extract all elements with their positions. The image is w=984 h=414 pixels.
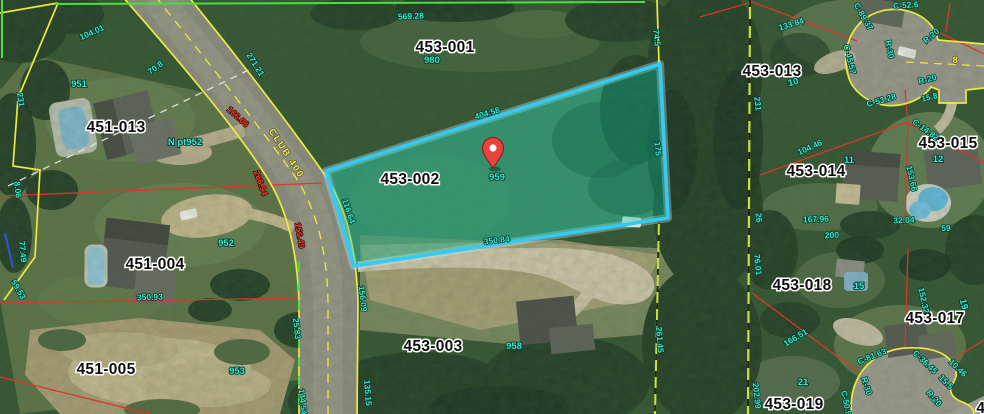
dim-label-8-06: 8.06 [12, 181, 24, 199]
dim-label-231: 231 [15, 92, 27, 108]
dim-label-569-28: 569.28 [398, 10, 425, 21]
dim-label-350-93: 350.93 [137, 292, 164, 303]
parcel-label-453-001: 453-001 [416, 39, 475, 56]
parcel-label-453-019: 453-019 [765, 396, 824, 413]
parcel-label-453-014: 453-014 [787, 163, 846, 180]
dim-label-26: 26 [754, 212, 765, 223]
map-canvas[interactable]: 453-001453-002451-013451-004451-005453-0… [0, 0, 984, 414]
addr-label-n-pt952: N pt952 [168, 137, 202, 148]
addr-label-959: 959 [489, 172, 505, 183]
dim-label-261-45: 261.45 [654, 326, 666, 353]
parcel-label-453-0: 453-0 [976, 400, 984, 414]
addr-label-951: 951 [71, 79, 88, 90]
dim-label-32-04: 32.04 [893, 215, 915, 226]
dim-label-59: 59 [941, 223, 951, 233]
parcel-label-453-017: 453-017 [906, 310, 965, 327]
parcel-label-453-018: 453-018 [773, 277, 832, 294]
dim-label-175: 175 [652, 141, 663, 156]
pin-dot [489, 144, 496, 151]
addr-label-980: 980 [424, 55, 440, 66]
parcel-label-451-013: 451-013 [87, 119, 146, 136]
parcel-label-451-004: 451-004 [126, 256, 185, 273]
addr-label-958: 958 [506, 341, 522, 352]
dim-label-c-52-6: C-52.6 [893, 0, 919, 11]
addr-label-11: 11 [844, 155, 855, 166]
parcel-label-453-003: 453-003 [404, 338, 463, 355]
dim-label-200: 200 [825, 230, 840, 240]
pin-shadow [489, 167, 501, 172]
addr-label-21: 21 [798, 377, 809, 388]
dim-label-135-15: 135.15 [362, 379, 374, 406]
addr-label-15: 15 [854, 281, 865, 292]
parcel-label-453-015: 453-015 [919, 135, 978, 152]
dim-label-74-5: 74.5 [651, 29, 663, 47]
parcel-label-451-005: 451-005 [77, 361, 136, 378]
parcel-map-viewer: 453-001453-002451-013451-004451-005453-0… [0, 0, 984, 414]
dim-label-167-96: 167.96 [803, 214, 830, 225]
addr-label-12: 12 [933, 154, 944, 165]
addr-label-952: 952 [218, 238, 234, 249]
road-label-8: 8 [953, 55, 960, 66]
dim-label-231: 231 [752, 96, 763, 111]
parcel-label-453-002: 453-002 [381, 171, 440, 188]
addr-label-953: 953 [229, 366, 245, 377]
